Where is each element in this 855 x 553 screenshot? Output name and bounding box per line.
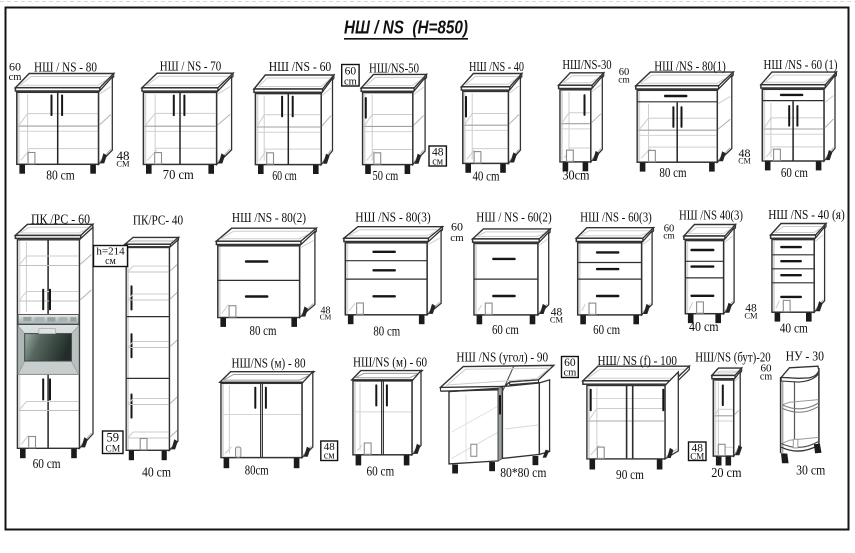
svg-text:cm: cm bbox=[760, 372, 772, 383]
svg-text:cm: cm bbox=[563, 368, 576, 379]
svg-text:80cm: 80cm bbox=[245, 463, 269, 478]
svg-text:cm: cm bbox=[618, 76, 630, 86]
svg-text:НШ /NS - 60: НШ /NS - 60 bbox=[269, 59, 332, 74]
svg-text:40 cm: 40 cm bbox=[142, 465, 172, 480]
svg-text:59: 59 bbox=[107, 431, 120, 445]
svg-text:СМ: СМ bbox=[550, 315, 564, 325]
svg-text:СМ: СМ bbox=[320, 313, 332, 322]
svg-text:НШ /NS 40(3): НШ /NS 40(3) bbox=[679, 208, 743, 223]
svg-text:СМ: СМ bbox=[738, 157, 750, 166]
svg-text:НШ /NS (угол) - 90: НШ /NS (угол) - 90 bbox=[456, 350, 548, 365]
svg-text:40 cm: 40 cm bbox=[472, 169, 500, 184]
svg-text:60 cm: 60 cm bbox=[492, 322, 520, 337]
svg-text:80 cm: 80 cm bbox=[373, 324, 400, 339]
svg-text:40 cm: 40 cm bbox=[689, 319, 719, 334]
svg-text:СМ: СМ bbox=[105, 445, 120, 455]
svg-text:50 cm: 50 cm bbox=[373, 168, 399, 183]
svg-text:НШ/NS-50: НШ/NS-50 bbox=[369, 61, 419, 76]
svg-text:80*80 cm: 80*80 cm bbox=[500, 465, 547, 480]
svg-text:НШ/NS (м) - 80: НШ/NS (м) - 80 bbox=[231, 356, 305, 371]
svg-text:80 cm: 80 cm bbox=[659, 165, 687, 180]
svg-text:НШ/NS (м) - 60: НШ/NS (м) - 60 bbox=[353, 355, 427, 370]
svg-text:СМ: СМ bbox=[690, 452, 704, 462]
svg-text:cm: cm bbox=[663, 232, 675, 242]
svg-text:см: см bbox=[432, 157, 443, 168]
svg-text:30cm: 30cm bbox=[562, 168, 590, 183]
svg-text:НШ /NS - 60(3): НШ /NS - 60(3) bbox=[580, 210, 652, 225]
svg-text:НШ /NS - 80(3): НШ /NS - 80(3) bbox=[355, 210, 431, 225]
svg-text:НШ /NS - 40: НШ /NS - 40 bbox=[469, 59, 524, 74]
svg-text:60 cm: 60 cm bbox=[272, 168, 297, 183]
svg-text:НШ / NS - 80: НШ / NS - 80 bbox=[34, 60, 97, 75]
svg-text:НУ - 30: НУ - 30 bbox=[786, 349, 825, 364]
svg-text:см: см bbox=[105, 256, 116, 267]
svg-text:НШ / NS - 60(2): НШ / NS - 60(2) bbox=[476, 210, 551, 225]
svg-text:НШ/ NS (f) - 100: НШ/ NS (f) - 100 bbox=[597, 353, 677, 368]
svg-text:30 cm: 30 cm bbox=[796, 463, 826, 478]
svg-text:40 cm: 40 cm bbox=[780, 321, 809, 336]
svg-text:СМ: СМ bbox=[744, 311, 758, 321]
svg-text:60 cm: 60 cm bbox=[781, 165, 809, 180]
svg-text:см: см bbox=[324, 451, 335, 462]
svg-text:НШ / NS (Н=850): НШ / NS (Н=850) bbox=[344, 17, 468, 38]
svg-text:60 cm: 60 cm bbox=[367, 464, 395, 479]
svg-text:ПК /РС - 60: ПК /РС - 60 bbox=[31, 212, 90, 227]
svg-text:60 cm: 60 cm bbox=[593, 322, 621, 337]
svg-text:ПК/РС- 40: ПК/РС- 40 bbox=[133, 213, 184, 228]
svg-text:cm: cm bbox=[344, 77, 357, 88]
svg-text:cm: cm bbox=[450, 232, 464, 244]
svg-text:НШ /NS - 60 (1): НШ /NS - 60 (1) bbox=[764, 57, 838, 72]
svg-text:20 cm: 20 cm bbox=[711, 465, 742, 480]
svg-text:80 cm: 80 cm bbox=[46, 168, 75, 183]
svg-text:НШ / NS - 70: НШ / NS - 70 bbox=[160, 59, 222, 74]
svg-text:60 cm: 60 cm bbox=[33, 456, 62, 471]
svg-text:СМ: СМ bbox=[116, 158, 130, 168]
svg-text:НШ /NS - 40 (я): НШ /NS - 40 (я) bbox=[768, 207, 845, 222]
svg-text:80 cm: 80 cm bbox=[250, 323, 278, 338]
svg-text:НШ/NS-30: НШ/NS-30 bbox=[562, 57, 612, 72]
svg-text:cm: cm bbox=[9, 72, 22, 83]
svg-text:70 cm: 70 cm bbox=[163, 167, 195, 182]
svg-text:90 cm: 90 cm bbox=[616, 467, 645, 482]
svg-text:НШ /NS - 80(1): НШ /NS - 80(1) bbox=[654, 59, 726, 74]
svg-text:НШ /NS - 80(2): НШ /NS - 80(2) bbox=[232, 210, 306, 225]
